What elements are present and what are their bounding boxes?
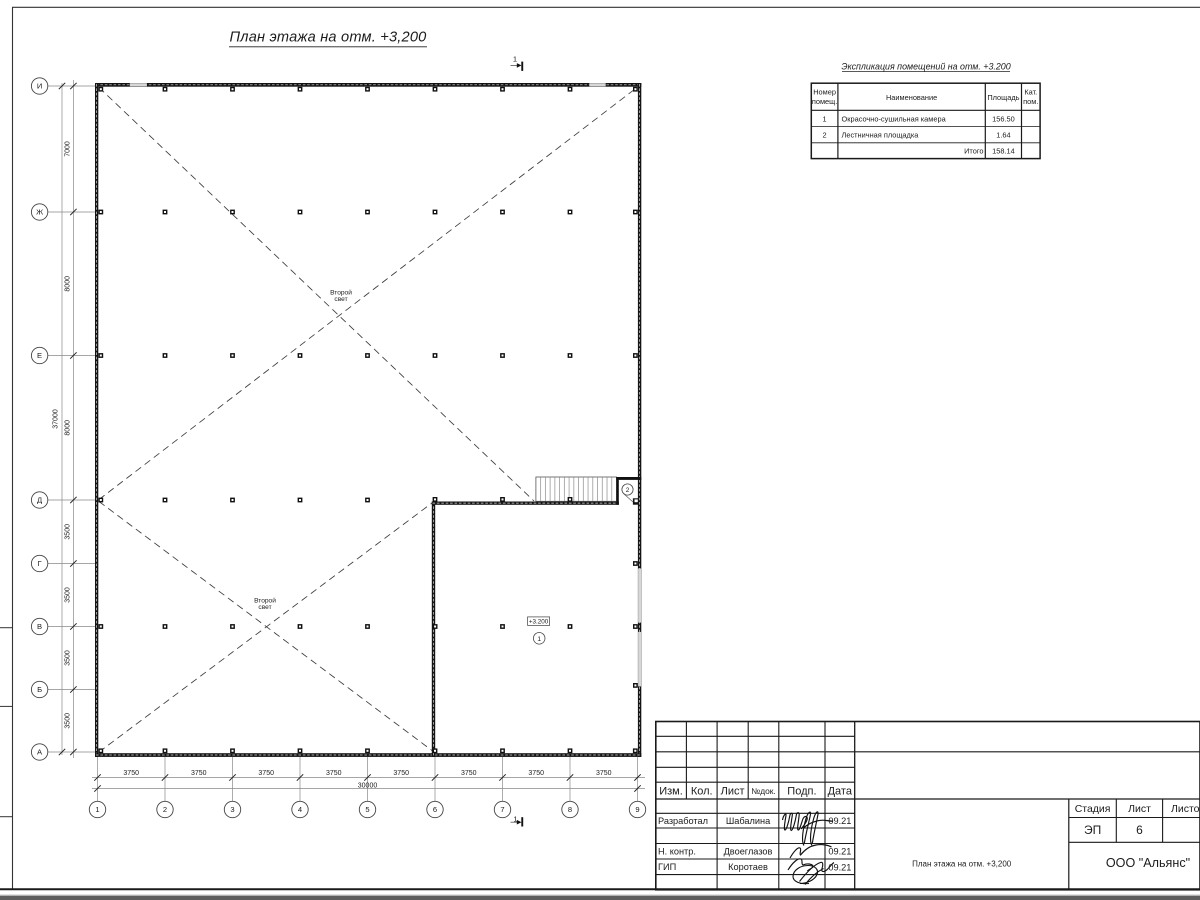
svg-text:1: 1 — [513, 55, 517, 64]
svg-text:37000: 37000 — [53, 409, 60, 429]
svg-text:План этажа на отм. +3,200: План этажа на отм. +3,200 — [912, 859, 1012, 868]
svg-text:30000: 30000 — [358, 782, 378, 789]
svg-text:3500: 3500 — [65, 587, 72, 603]
svg-text:09.21: 09.21 — [828, 847, 851, 857]
svg-text:8: 8 — [568, 805, 572, 814]
svg-text:7: 7 — [500, 805, 504, 814]
svg-text:№док.: №док. — [751, 786, 776, 796]
svg-text:ООО "Альянс": ООО "Альянс" — [1106, 856, 1190, 870]
svg-text:Кол.: Кол. — [691, 785, 713, 797]
svg-text:4: 4 — [298, 805, 302, 814]
svg-text:3500: 3500 — [65, 713, 72, 729]
svg-text:Окрасочно-сушильная камера: Окрасочно-сушильная камера — [842, 114, 947, 123]
svg-text:3750: 3750 — [393, 770, 409, 777]
svg-text:Кат.: Кат. — [1024, 88, 1037, 97]
svg-text:Коротаев: Коротаев — [728, 862, 768, 872]
svg-text:Б: Б — [37, 685, 42, 694]
svg-text:План этажа на отм. +3,200: План этажа на отм. +3,200 — [230, 30, 427, 46]
svg-text:пом.: пом. — [1023, 97, 1038, 106]
svg-text:158.14: 158.14 — [992, 147, 1015, 156]
svg-text:И: И — [37, 82, 42, 91]
svg-text:3750: 3750 — [461, 770, 477, 777]
svg-text:3750: 3750 — [191, 770, 207, 777]
svg-text:ГИП: ГИП — [658, 862, 676, 872]
svg-text:3750: 3750 — [326, 770, 342, 777]
svg-text:8000: 8000 — [65, 276, 72, 292]
svg-text:Лист: Лист — [1128, 803, 1151, 815]
svg-text:156.50: 156.50 — [992, 114, 1015, 123]
svg-text:В: В — [37, 622, 42, 631]
svg-text:Изм.: Изм. — [659, 785, 683, 797]
svg-text:3: 3 — [230, 805, 234, 814]
svg-text:Г: Г — [38, 559, 42, 568]
svg-text:Стадия: Стадия — [1075, 803, 1111, 815]
svg-text:Лестничная площадка: Лестничная площадка — [842, 131, 920, 140]
svg-text:2: 2 — [823, 131, 827, 140]
svg-text:Наименование: Наименование — [886, 93, 937, 102]
svg-text:Экспликация помещений на отм.: Экспликация помещений на отм. +3.200 — [841, 62, 1010, 72]
svg-text:Номер: Номер — [813, 88, 836, 97]
svg-text:Лист: Лист — [721, 785, 745, 797]
svg-text:1.64: 1.64 — [996, 131, 1010, 140]
svg-text:помещ.: помещ. — [812, 97, 837, 106]
svg-text:1: 1 — [823, 114, 827, 123]
svg-text:свет: свет — [258, 604, 271, 611]
svg-text:Подп.: Подп. — [787, 785, 816, 797]
svg-text:3750: 3750 — [123, 770, 139, 777]
svg-text:8000: 8000 — [65, 420, 72, 436]
svg-text:Двоеглазов: Двоеглазов — [724, 846, 773, 856]
svg-text:свет: свет — [334, 296, 347, 303]
svg-text:9: 9 — [635, 805, 639, 814]
svg-text:3750: 3750 — [258, 770, 274, 777]
svg-text:Итого: Итого — [964, 147, 983, 156]
svg-text:ЭП: ЭП — [1084, 823, 1101, 837]
svg-text:Д: Д — [37, 496, 42, 505]
svg-text:6: 6 — [433, 805, 437, 814]
svg-text:3500: 3500 — [65, 650, 72, 666]
svg-text:7000: 7000 — [65, 141, 72, 157]
svg-text:6: 6 — [1136, 823, 1143, 837]
svg-text:3750: 3750 — [528, 770, 544, 777]
svg-text:3500: 3500 — [65, 524, 72, 540]
svg-text:2: 2 — [626, 487, 630, 494]
svg-text:Н. контр.: Н. контр. — [658, 846, 696, 856]
svg-text:+3.200: +3.200 — [529, 618, 549, 625]
svg-text:2: 2 — [163, 805, 167, 814]
svg-text:Площадь: Площадь — [987, 93, 1019, 102]
svg-text:Ж: Ж — [36, 208, 43, 217]
svg-text:Разработал: Разработал — [658, 816, 708, 826]
svg-text:Шабалина: Шабалина — [726, 816, 771, 826]
svg-text:1: 1 — [95, 805, 99, 814]
svg-text:1: 1 — [537, 636, 541, 643]
svg-text:Листов: Листов — [1171, 803, 1200, 815]
svg-text:Дата: Дата — [828, 785, 853, 797]
svg-text:5: 5 — [365, 805, 369, 814]
svg-text:3750: 3750 — [596, 770, 612, 777]
svg-text:Е: Е — [37, 351, 42, 360]
